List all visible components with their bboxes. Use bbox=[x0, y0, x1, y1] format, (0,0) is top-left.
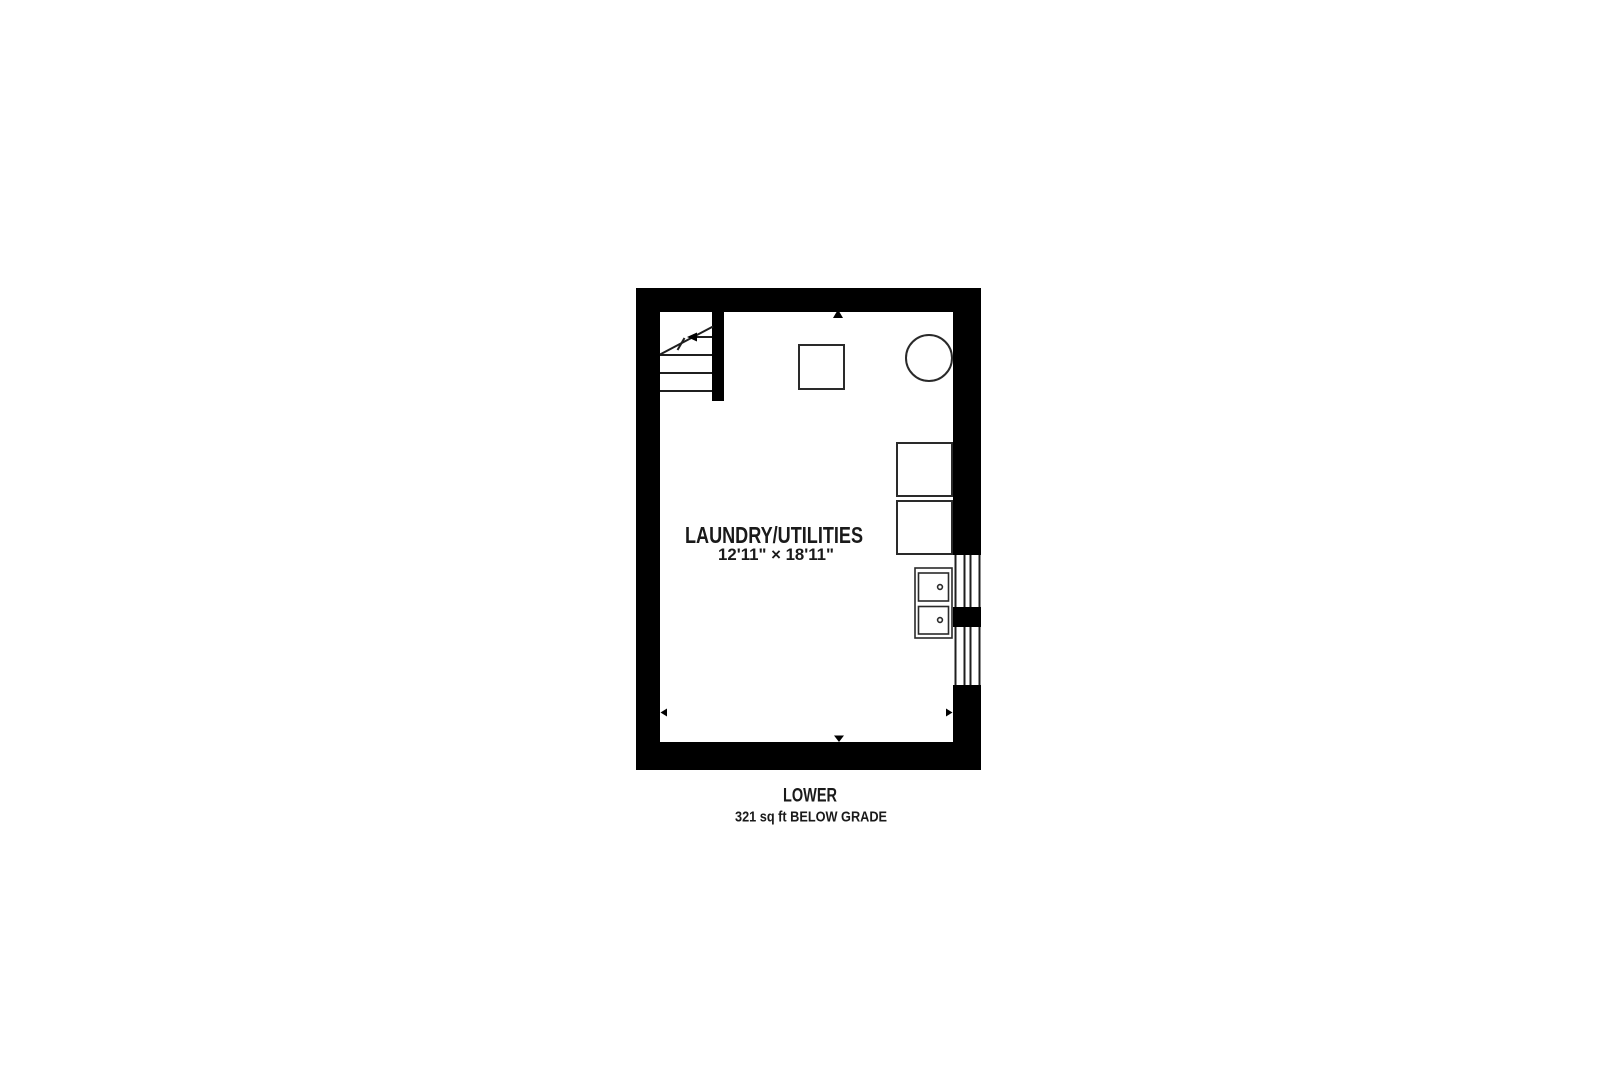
laundry-sink bbox=[915, 568, 952, 638]
window-lower bbox=[956, 627, 980, 685]
washer bbox=[897, 443, 952, 496]
sink-basin bbox=[919, 573, 949, 601]
stair-partition-wall bbox=[712, 312, 724, 401]
room-dimensions-label: 12'11" × 18'11" bbox=[718, 546, 834, 564]
wall-right-upper bbox=[953, 288, 981, 555]
stair-direction-line bbox=[660, 327, 713, 355]
water-heater-tank bbox=[906, 335, 952, 381]
floorplan-drawing: LAUNDRY/UTILITIES 12'11" × 18'11" LOWER … bbox=[0, 0, 1620, 1080]
floor-area-label: 321 sq ft BELOW GRADE bbox=[735, 809, 887, 826]
floor-level-label: LOWER bbox=[783, 785, 837, 807]
dryer bbox=[897, 501, 952, 554]
furnace bbox=[799, 345, 844, 389]
window-upper bbox=[956, 555, 980, 607]
wall-right-lower bbox=[953, 685, 981, 770]
sink-drain-icon bbox=[938, 618, 943, 623]
wall-left bbox=[636, 288, 660, 770]
room-name-label: LAUNDRY/UTILITIES bbox=[685, 522, 863, 548]
stairs bbox=[660, 327, 713, 392]
wall-bottom bbox=[636, 742, 981, 770]
wall-marker-bottom-icon bbox=[834, 736, 844, 743]
floorplan-page: LAUNDRY/UTILITIES 12'11" × 18'11" LOWER … bbox=[0, 0, 1620, 1080]
sink-drain-icon bbox=[938, 585, 943, 590]
wall-marker-right-icon bbox=[946, 709, 953, 717]
wall-top bbox=[636, 288, 981, 312]
wall-marker-left-icon bbox=[661, 709, 668, 717]
sink-basin bbox=[919, 607, 949, 635]
wall-right-mullion bbox=[953, 607, 981, 627]
